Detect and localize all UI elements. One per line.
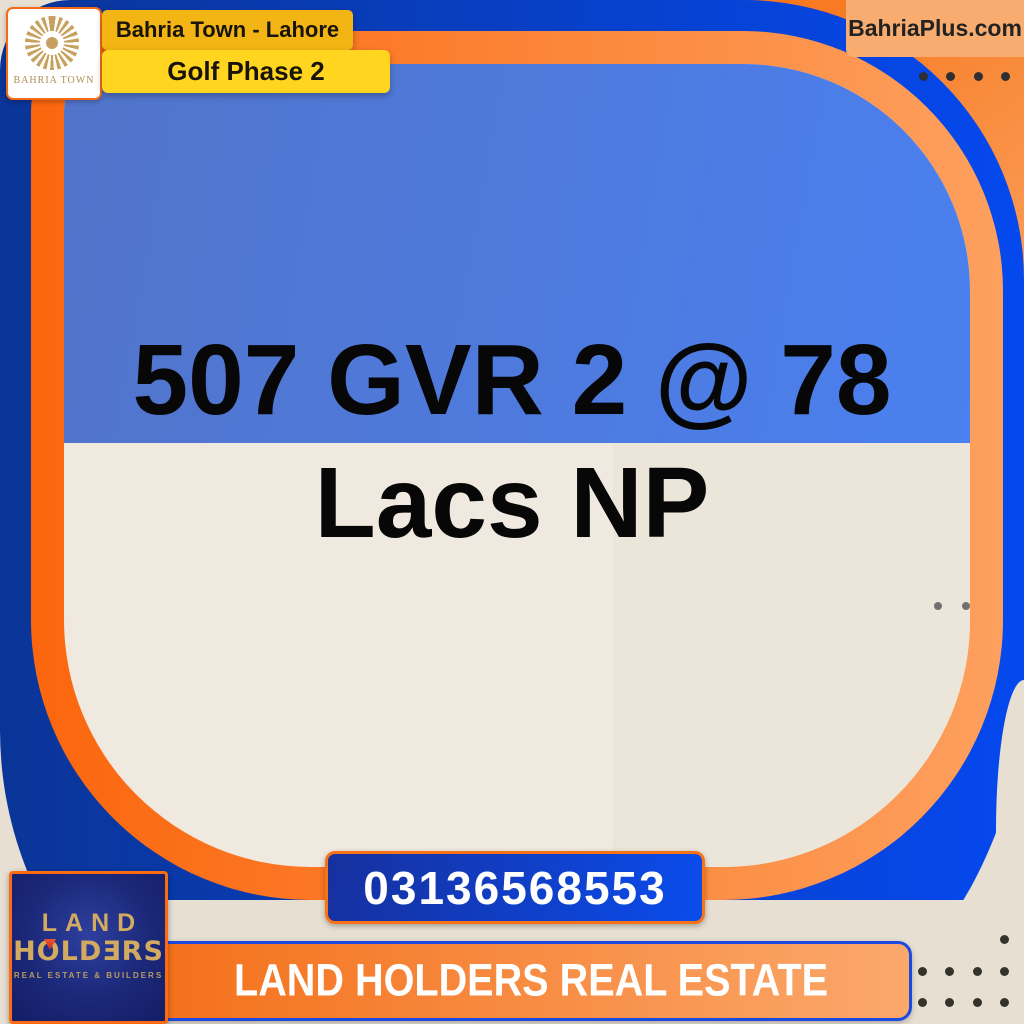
headline-line2: Lacs NP bbox=[0, 453, 1024, 553]
agency-banner-label: LAND HOLDERS REAL ESTATE bbox=[234, 955, 828, 1007]
land-holders-word1: LAND bbox=[12, 909, 165, 938]
bahria-town-logo-box: BAHRIA TOWN bbox=[6, 7, 102, 100]
phase-label: Golf Phase 2 bbox=[102, 50, 390, 93]
headline-line1: 507 GVR 2 @ 78 bbox=[0, 330, 1024, 430]
bahria-town-logo-caption: BAHRIA TOWN bbox=[8, 75, 100, 86]
location-label: Bahria Town - Lahore bbox=[102, 10, 353, 50]
land-holders-logo: LAND HOLDƎRS REAL ESTATE & BUILDERS bbox=[9, 871, 168, 1024]
land-holders-word2: HOLDƎRS bbox=[12, 936, 165, 967]
land-holders-tagline: REAL ESTATE & BUILDERS bbox=[12, 971, 165, 980]
website-link[interactable]: BahriaPlus.com bbox=[846, 0, 1024, 57]
bahria-town-emblem-icon bbox=[25, 16, 79, 70]
agency-banner: LAND HOLDERS REAL ESTATE bbox=[150, 941, 912, 1021]
phone-number-button[interactable]: 03136568553 bbox=[325, 851, 705, 924]
poster-canvas: 507 GVR 2 @ 78 Lacs NP BAHRIA TOWN Bahri… bbox=[0, 0, 1024, 1024]
location-label-group: Bahria Town - Lahore Golf Phase 2 bbox=[102, 10, 390, 93]
